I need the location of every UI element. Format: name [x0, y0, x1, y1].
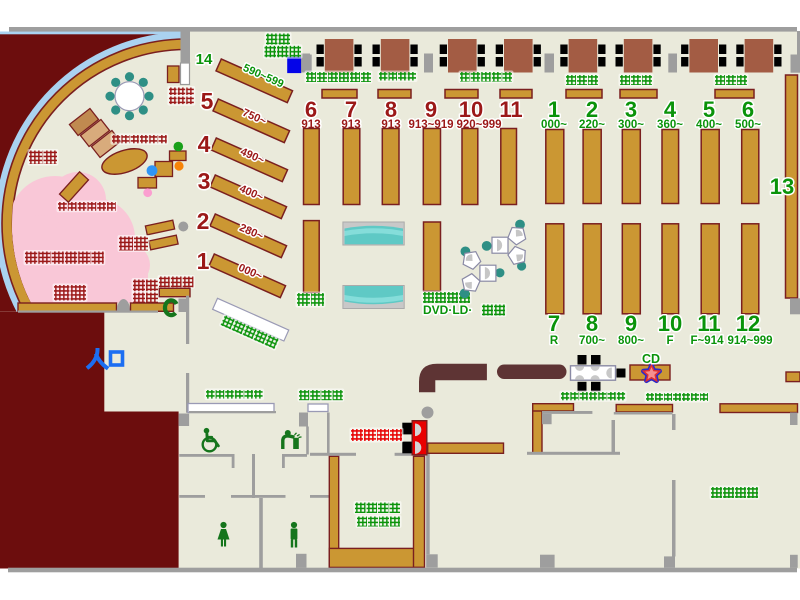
svg-text:1: 1 [197, 248, 210, 274]
svg-text:3: 3 [198, 168, 211, 194]
svg-text:8: 8 [586, 311, 598, 336]
svg-text:R: R [550, 335, 559, 347]
svg-text:14: 14 [196, 51, 213, 68]
svg-text:7: 7 [548, 311, 560, 336]
svg-text:2: 2 [197, 208, 210, 234]
svg-text:800~: 800~ [618, 335, 644, 347]
svg-text:F~914: F~914 [691, 335, 725, 347]
svg-text:11: 11 [499, 97, 522, 122]
svg-text:9: 9 [625, 311, 637, 336]
svg-text:CD: CD [642, 352, 660, 366]
svg-text:12: 12 [736, 311, 760, 336]
svg-text:F: F [666, 335, 673, 347]
svg-text:DVD·LD·: DVD·LD· [423, 303, 472, 317]
svg-text:700~: 700~ [579, 335, 605, 347]
svg-text:10: 10 [658, 311, 682, 336]
svg-text:5: 5 [201, 88, 214, 114]
svg-text:13: 13 [770, 174, 794, 199]
svg-text:4: 4 [198, 131, 211, 157]
svg-text:914~999: 914~999 [727, 335, 772, 347]
svg-text:11: 11 [697, 311, 720, 336]
